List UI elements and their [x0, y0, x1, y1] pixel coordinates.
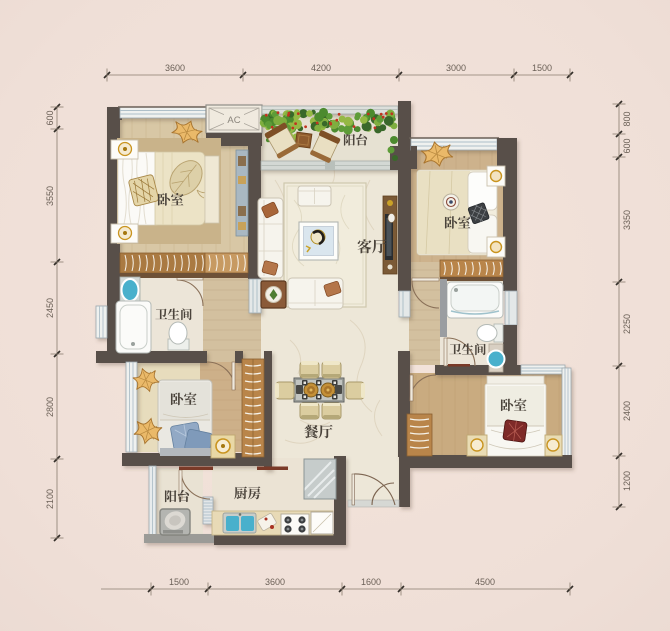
svg-text:1500: 1500 [532, 63, 552, 73]
svg-text:3600: 3600 [265, 577, 285, 587]
svg-text:2450: 2450 [45, 298, 55, 318]
svg-text:600: 600 [622, 138, 632, 153]
svg-text:800: 800 [622, 111, 632, 126]
svg-text:600: 600 [45, 110, 55, 125]
svg-text:3550: 3550 [45, 186, 55, 206]
svg-text:AC: AC [227, 115, 240, 126]
svg-text:3600: 3600 [165, 63, 185, 73]
svg-text:1200: 1200 [622, 471, 632, 491]
svg-text:4200: 4200 [311, 63, 331, 73]
svg-text:4500: 4500 [475, 577, 495, 587]
svg-text:2800: 2800 [45, 397, 55, 417]
svg-text:3000: 3000 [446, 63, 466, 73]
svg-text:1600: 1600 [361, 577, 381, 587]
svg-text:2400: 2400 [622, 401, 632, 421]
svg-text:2100: 2100 [45, 489, 55, 509]
svg-text:1500: 1500 [169, 577, 189, 587]
svg-text:2250: 2250 [622, 314, 632, 334]
svg-text:3350: 3350 [622, 210, 632, 230]
